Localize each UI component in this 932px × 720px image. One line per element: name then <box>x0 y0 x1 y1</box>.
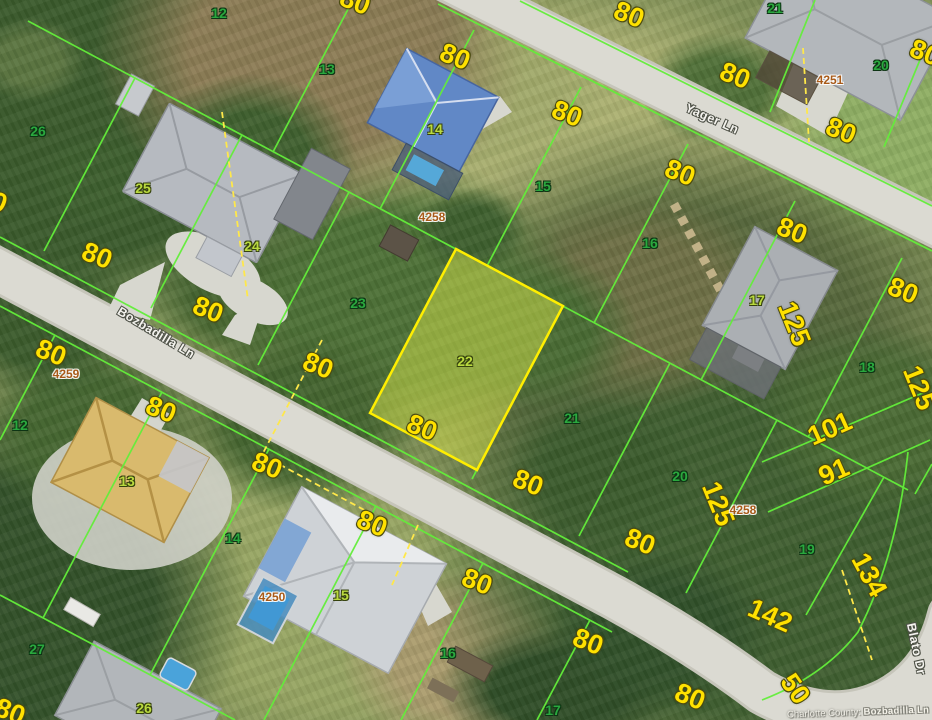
house-lot26 <box>55 641 222 720</box>
debris-lot16 <box>447 646 493 682</box>
shed-lot25 <box>116 74 155 116</box>
trailer-lot24 <box>379 225 419 261</box>
watermark-agency: Charlotte County: <box>787 706 861 720</box>
house-lot14-blue-roof <box>353 49 502 200</box>
debris-lot16-b <box>427 678 459 703</box>
subject-lot-highlight <box>370 249 563 470</box>
aerial-parcel-map: 8080808080808080125125808080808080808080… <box>0 0 932 720</box>
driveway-lot25-apron <box>108 262 165 320</box>
house-lot25 <box>111 103 303 284</box>
rv-boat <box>64 597 100 626</box>
map-vector-layer <box>0 0 932 720</box>
watermark-street: Bozbadilla Ln <box>863 704 929 717</box>
house-lot17 <box>685 226 837 401</box>
